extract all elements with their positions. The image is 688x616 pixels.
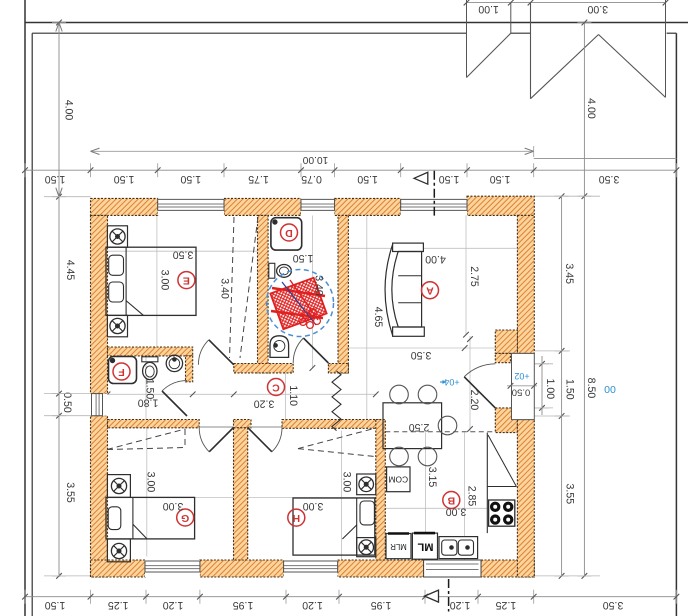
svg-text:4.00: 4.00 — [585, 98, 597, 119]
svg-text:0.75: 0.75 — [301, 173, 322, 185]
svg-text:3.00: 3.00 — [340, 472, 352, 493]
svg-text:0.50: 0.50 — [61, 392, 73, 413]
svg-text:MLR: MLR — [390, 542, 407, 551]
svg-text:3.00: 3.00 — [446, 506, 467, 518]
svg-text:0.50: 0.50 — [512, 386, 531, 397]
svg-text:1.20: 1.20 — [302, 599, 323, 611]
svg-text:1.25: 1.25 — [108, 599, 129, 611]
svg-text:1.50: 1.50 — [144, 379, 156, 400]
svg-text:3.00: 3.00 — [303, 500, 324, 512]
svg-text:3.00: 3.00 — [587, 3, 608, 15]
svg-text:00: 00 — [604, 383, 616, 395]
svg-text:3.20: 3.20 — [254, 398, 275, 410]
svg-text:4.45: 4.45 — [64, 260, 76, 281]
svg-text:1.20: 1.20 — [450, 599, 471, 611]
svg-text:10.00: 10.00 — [302, 154, 328, 165]
svg-text:4.00: 4.00 — [425, 253, 446, 265]
svg-text:3.40: 3.40 — [219, 278, 231, 299]
svg-text:F: F — [118, 366, 125, 378]
svg-text:4.65: 4.65 — [372, 307, 384, 328]
svg-text:ML: ML — [417, 541, 433, 553]
svg-text:C: C — [272, 382, 280, 394]
svg-text:H: H — [293, 512, 301, 524]
svg-text:1.25: 1.25 — [495, 599, 516, 611]
svg-text:1.50: 1.50 — [439, 173, 460, 185]
svg-text:3.50: 3.50 — [173, 249, 194, 261]
svg-text:1.50: 1.50 — [564, 379, 576, 400]
svg-text:3.55: 3.55 — [564, 483, 576, 504]
svg-text:1.95: 1.95 — [371, 599, 392, 611]
svg-text:1.75: 1.75 — [248, 173, 269, 185]
svg-text:A: A — [426, 285, 434, 297]
svg-text:3.50: 3.50 — [603, 599, 624, 611]
svg-text:3.00: 3.00 — [163, 500, 184, 512]
svg-text:1.00: 1.00 — [478, 3, 499, 15]
svg-text:1.50: 1.50 — [357, 173, 378, 185]
svg-text:2.20: 2.20 — [468, 390, 480, 411]
svg-text:3.00: 3.00 — [144, 472, 156, 493]
svg-text:+02: +02 — [514, 371, 529, 381]
svg-text:2.75: 2.75 — [468, 266, 480, 287]
svg-text:COM: COM — [389, 474, 409, 484]
svg-text:1.50: 1.50 — [490, 173, 511, 185]
svg-text:2.50: 2.50 — [409, 421, 430, 433]
svg-text:1.50: 1.50 — [293, 252, 314, 264]
svg-text:2.85: 2.85 — [466, 486, 478, 507]
svg-text:B: B — [447, 495, 455, 507]
svg-text:3.40: 3.40 — [313, 275, 325, 296]
svg-text:1.50: 1.50 — [114, 173, 135, 185]
svg-text:E: E — [183, 275, 190, 287]
svg-text:3.45: 3.45 — [563, 263, 575, 284]
svg-text:1.50: 1.50 — [45, 173, 66, 185]
svg-text:4.00: 4.00 — [63, 100, 75, 121]
svg-text:1.00: 1.00 — [544, 378, 556, 399]
svg-text:1.10: 1.10 — [287, 385, 299, 406]
svg-text:+04: +04 — [444, 377, 459, 387]
svg-text:8.50: 8.50 — [585, 378, 597, 399]
svg-text:1.20: 1.20 — [163, 599, 184, 611]
svg-text:D: D — [285, 227, 293, 239]
svg-text:3.15: 3.15 — [426, 467, 438, 488]
svg-text:3.00: 3.00 — [158, 270, 170, 291]
svg-text:3.50: 3.50 — [411, 349, 432, 361]
svg-text:1.50: 1.50 — [180, 173, 201, 185]
svg-text:1.50: 1.50 — [45, 599, 66, 611]
svg-text:G: G — [181, 512, 189, 524]
svg-text:1.95: 1.95 — [233, 599, 254, 611]
svg-text:3.55: 3.55 — [64, 482, 76, 503]
svg-text:3.50: 3.50 — [599, 173, 620, 185]
